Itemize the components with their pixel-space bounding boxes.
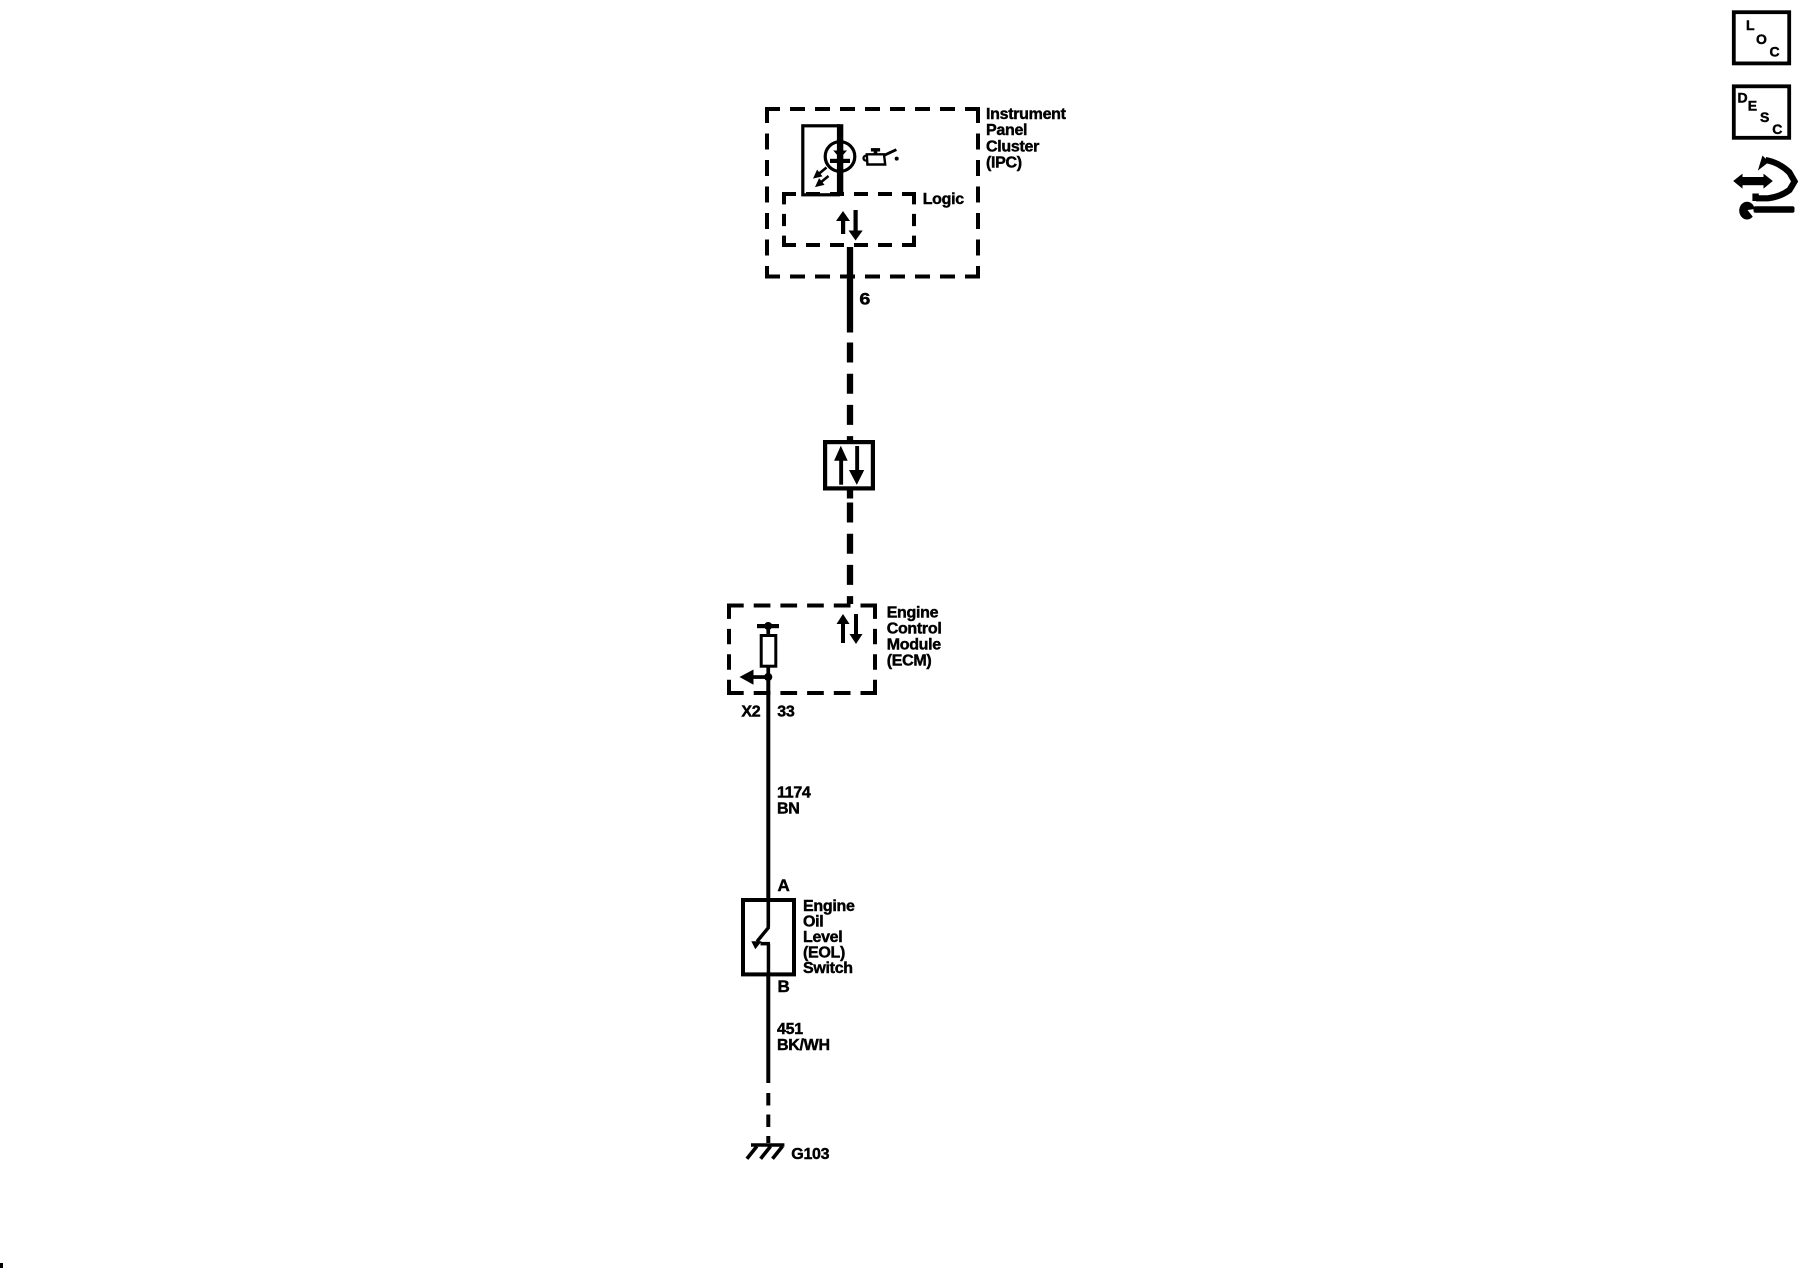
svg-text:33: 33 [777,703,795,720]
svg-text:(IPC): (IPC) [986,154,1022,171]
svg-text:Control: Control [887,621,942,638]
svg-text:BN: BN [777,800,800,817]
svg-text:B: B [778,977,790,996]
svg-text:E: E [1748,98,1757,114]
svg-text:Cluster: Cluster [986,138,1039,155]
svg-text:1174: 1174 [777,784,811,801]
svg-text:O: O [1756,31,1767,47]
svg-text:C: C [1772,121,1782,137]
svg-text:Switch: Switch [803,960,853,977]
svg-text:BK/WH: BK/WH [777,1037,830,1054]
svg-text:6: 6 [859,290,870,309]
svg-text:Module: Module [887,637,942,654]
svg-text:X2: X2 [741,703,760,720]
svg-text:C: C [1770,43,1780,59]
svg-text:451: 451 [777,1021,803,1038]
svg-text:D: D [1738,89,1748,105]
svg-text:S: S [1760,109,1769,125]
svg-text:Panel: Panel [986,122,1027,139]
svg-text:A: A [778,876,790,895]
svg-text:G103: G103 [791,1146,829,1163]
svg-text:Logic: Logic [923,191,965,208]
svg-text:Instrument: Instrument [986,106,1067,123]
svg-text:L: L [1746,17,1755,33]
svg-text:(ECM): (ECM) [887,653,932,670]
svg-text:Engine: Engine [887,605,939,622]
